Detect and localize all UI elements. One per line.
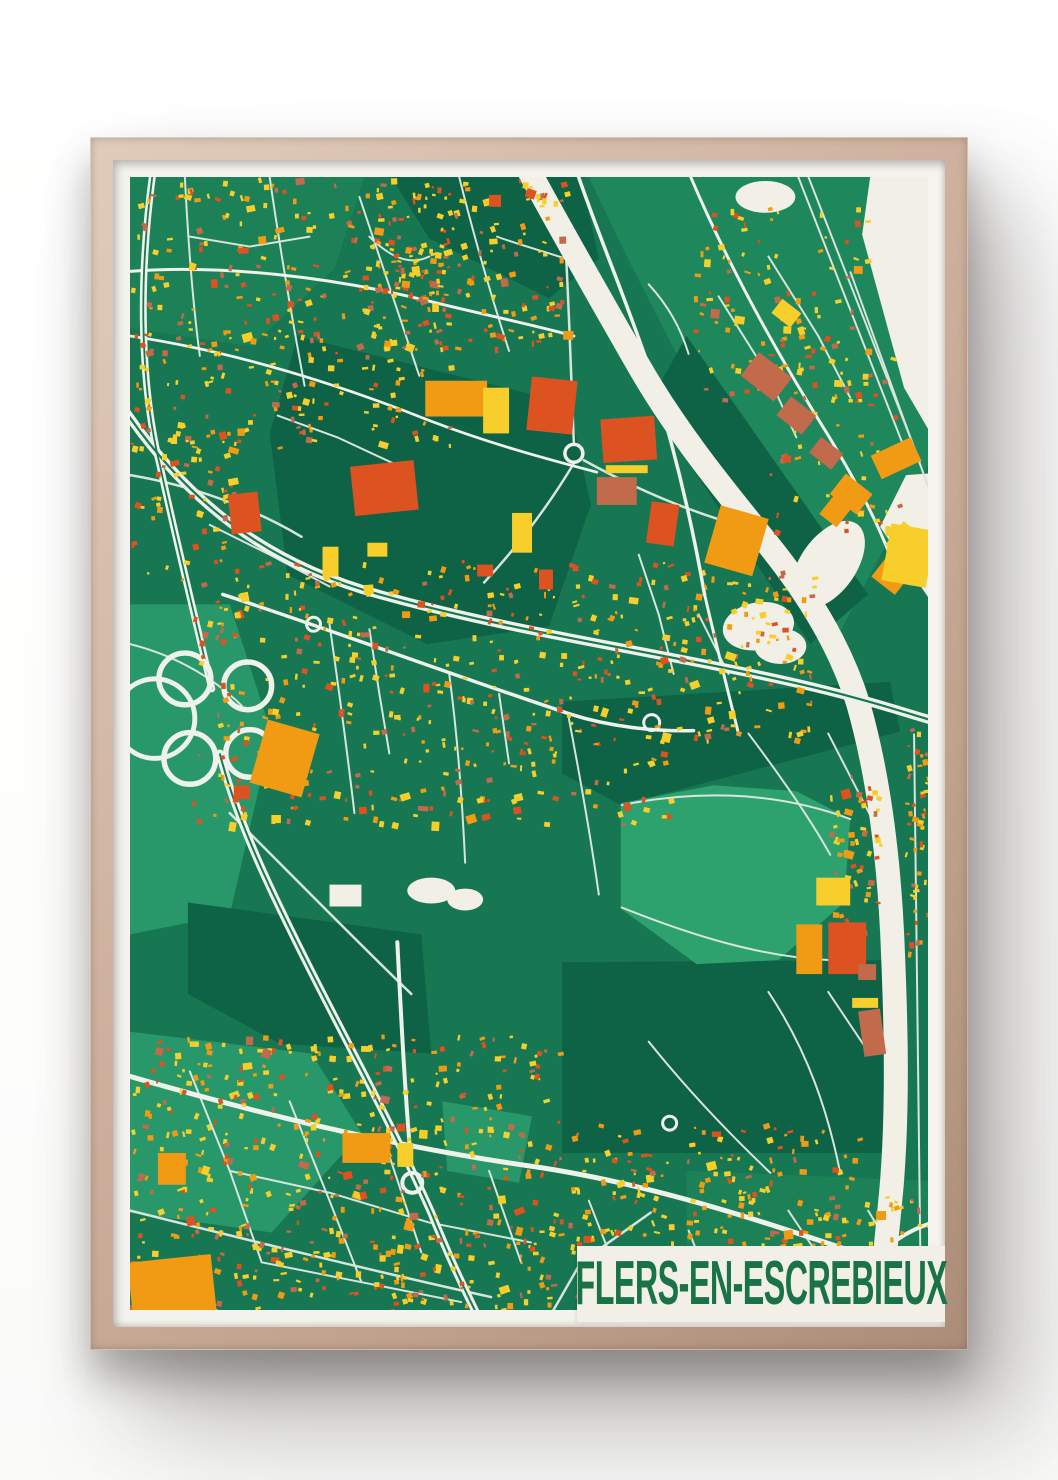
- wall-background: FLERS-EN-ESCREBIEUX: [0, 0, 1058, 1480]
- city-map-graphic: [130, 177, 928, 1310]
- title-banner: FLERS-EN-ESCREBIEUX: [577, 1246, 945, 1322]
- poster-frame: FLERS-EN-ESCREBIEUX: [90, 137, 968, 1350]
- poster-mat: FLERS-EN-ESCREBIEUX: [113, 160, 945, 1327]
- poster-title: FLERS-EN-ESCREBIEUX: [575, 1253, 947, 1315]
